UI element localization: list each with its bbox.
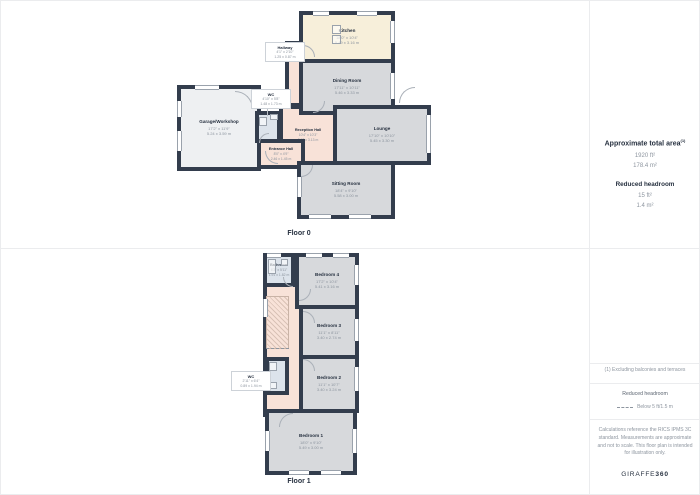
label-leader-line [267, 108, 268, 116]
legend-title: Reduced headroom [589, 391, 700, 397]
reduced-headroom-title: Reduced headroom [589, 181, 700, 188]
window [309, 214, 331, 219]
legend: Reduced headroom Below 5 ft/1.5 m [589, 391, 700, 410]
hallway-label-tag: Hallway 4'1" x 2'10" 1.25 x 0.87 m [265, 42, 305, 62]
dashed-line-sample [617, 407, 633, 408]
floorplan-page: Reception Hall 10'4" x 10'3" 3.17 x 3.13… [0, 0, 700, 495]
sidebar-section-divider [589, 419, 700, 420]
legend-row: Below 5 ft/1.5 m [589, 404, 700, 410]
window [177, 101, 182, 117]
appliance-icon [332, 25, 341, 34]
total-area-title: Approximate total area(1) [589, 138, 700, 147]
window [289, 470, 309, 475]
total-area-ft: 1920 ft² [589, 152, 700, 162]
room-dimensions-imperial: 11'1" x 10'7" [317, 382, 341, 387]
sidebar-section-divider [589, 363, 700, 364]
floor1-label: Floor 1 [264, 478, 334, 485]
room-bedroom4: Bedroom 4 17'2" x 10'4" 5.41 x 3.16 m [295, 253, 359, 309]
window [177, 131, 182, 151]
window [263, 299, 268, 317]
wc-floor1-label-tag: WC 2'11" x 6'4" 0.89 x 1.94 m [231, 371, 271, 391]
area-summary: Approximate total area(1) 1920 ft² 178.4… [589, 138, 700, 212]
window [267, 253, 281, 258]
window [352, 429, 357, 453]
room-label: Bedroom 4 17'2" x 10'4" 5.41 x 3.16 m [315, 272, 339, 289]
total-area-footnote-marker: (1) [680, 138, 685, 143]
window [297, 177, 302, 197]
room-dimensions-metric: 5.49 x 3.00 m [299, 445, 323, 450]
room-dimensions-imperial: 17'2" x 10'4" [315, 279, 339, 284]
reduced-headroom-line [266, 348, 289, 349]
toilet-icon [259, 117, 267, 126]
room-label: Bedroom 1 18'0" x 9'10" 5.49 x 3.00 m [299, 433, 323, 450]
bathtub-icon [268, 259, 276, 274]
total-area-title-text: Approximate total area [605, 140, 681, 147]
room-dimensions-metric: 1.25 x 0.87 m [268, 55, 302, 60]
window [306, 253, 322, 258]
room-label: Bedroom 2 11'1" x 10'7" 3.40 x 3.24 m [317, 375, 341, 392]
window [354, 367, 359, 391]
staircase [266, 296, 289, 349]
room-name: Bedroom 3 [317, 323, 341, 329]
room-label: Bedroom 3 11'1" x 8'11" 3.40 x 2.74 m [317, 323, 341, 340]
window [390, 21, 395, 43]
footnote: (1) Excluding balconies and terraces [589, 367, 700, 373]
window [333, 253, 349, 258]
sink-icon [281, 259, 288, 266]
room-dimensions-metric: 0.89 x 1.94 m [234, 384, 268, 389]
giraffe360-logo: GIRAFFE360 [589, 471, 700, 478]
room-dimensions-metric: 5.41 x 3.16 m [315, 284, 339, 289]
window [390, 73, 395, 99]
window [313, 11, 329, 16]
disclaimer: Calculations reference the RICS IPMS 3C … [595, 427, 695, 458]
window [349, 214, 371, 219]
window [357, 11, 377, 16]
brand-text-bold: 360 [655, 471, 668, 478]
room-dimensions-metric: 3.40 x 3.24 m [317, 387, 341, 392]
room-bedroom1: Bedroom 1 18'0" x 9'10" 5.49 x 3.00 m [265, 409, 357, 475]
room-dimensions-imperial: 11'1" x 8'11" [317, 330, 341, 335]
room-name: Bedroom 2 [317, 375, 341, 381]
horizontal-divider [1, 248, 700, 249]
reduced-headroom-m: 1.4 m² [589, 202, 700, 212]
total-area-m: 178.4 m² [589, 162, 700, 172]
sidebar-divider [589, 1, 590, 495]
room-name: Bedroom 4 [315, 272, 339, 278]
window [354, 319, 359, 341]
brand-text: GIRAFFE [621, 471, 655, 478]
toilet-icon [269, 362, 277, 371]
window [426, 115, 431, 153]
sink-icon [270, 114, 278, 120]
window [321, 470, 341, 475]
reduced-headroom-ft: 15 ft² [589, 192, 700, 202]
room-name: Bedroom 1 [299, 433, 323, 439]
sidebar-section-divider [589, 383, 700, 384]
window [354, 265, 359, 285]
legend-label: Below 5 ft/1.5 m [637, 404, 673, 410]
room-dimensions-metric: 1.48 x 1.73 m [254, 102, 288, 107]
room-dimensions-metric: 3.40 x 2.74 m [317, 335, 341, 340]
room-dimensions-imperial: 18'0" x 9'10" [299, 440, 323, 445]
window [265, 431, 270, 451]
window [195, 85, 219, 90]
appliance-icon [332, 35, 341, 44]
wc-label-tag: WC 4'10" x 5'8" 1.48 x 1.73 m [251, 89, 291, 109]
